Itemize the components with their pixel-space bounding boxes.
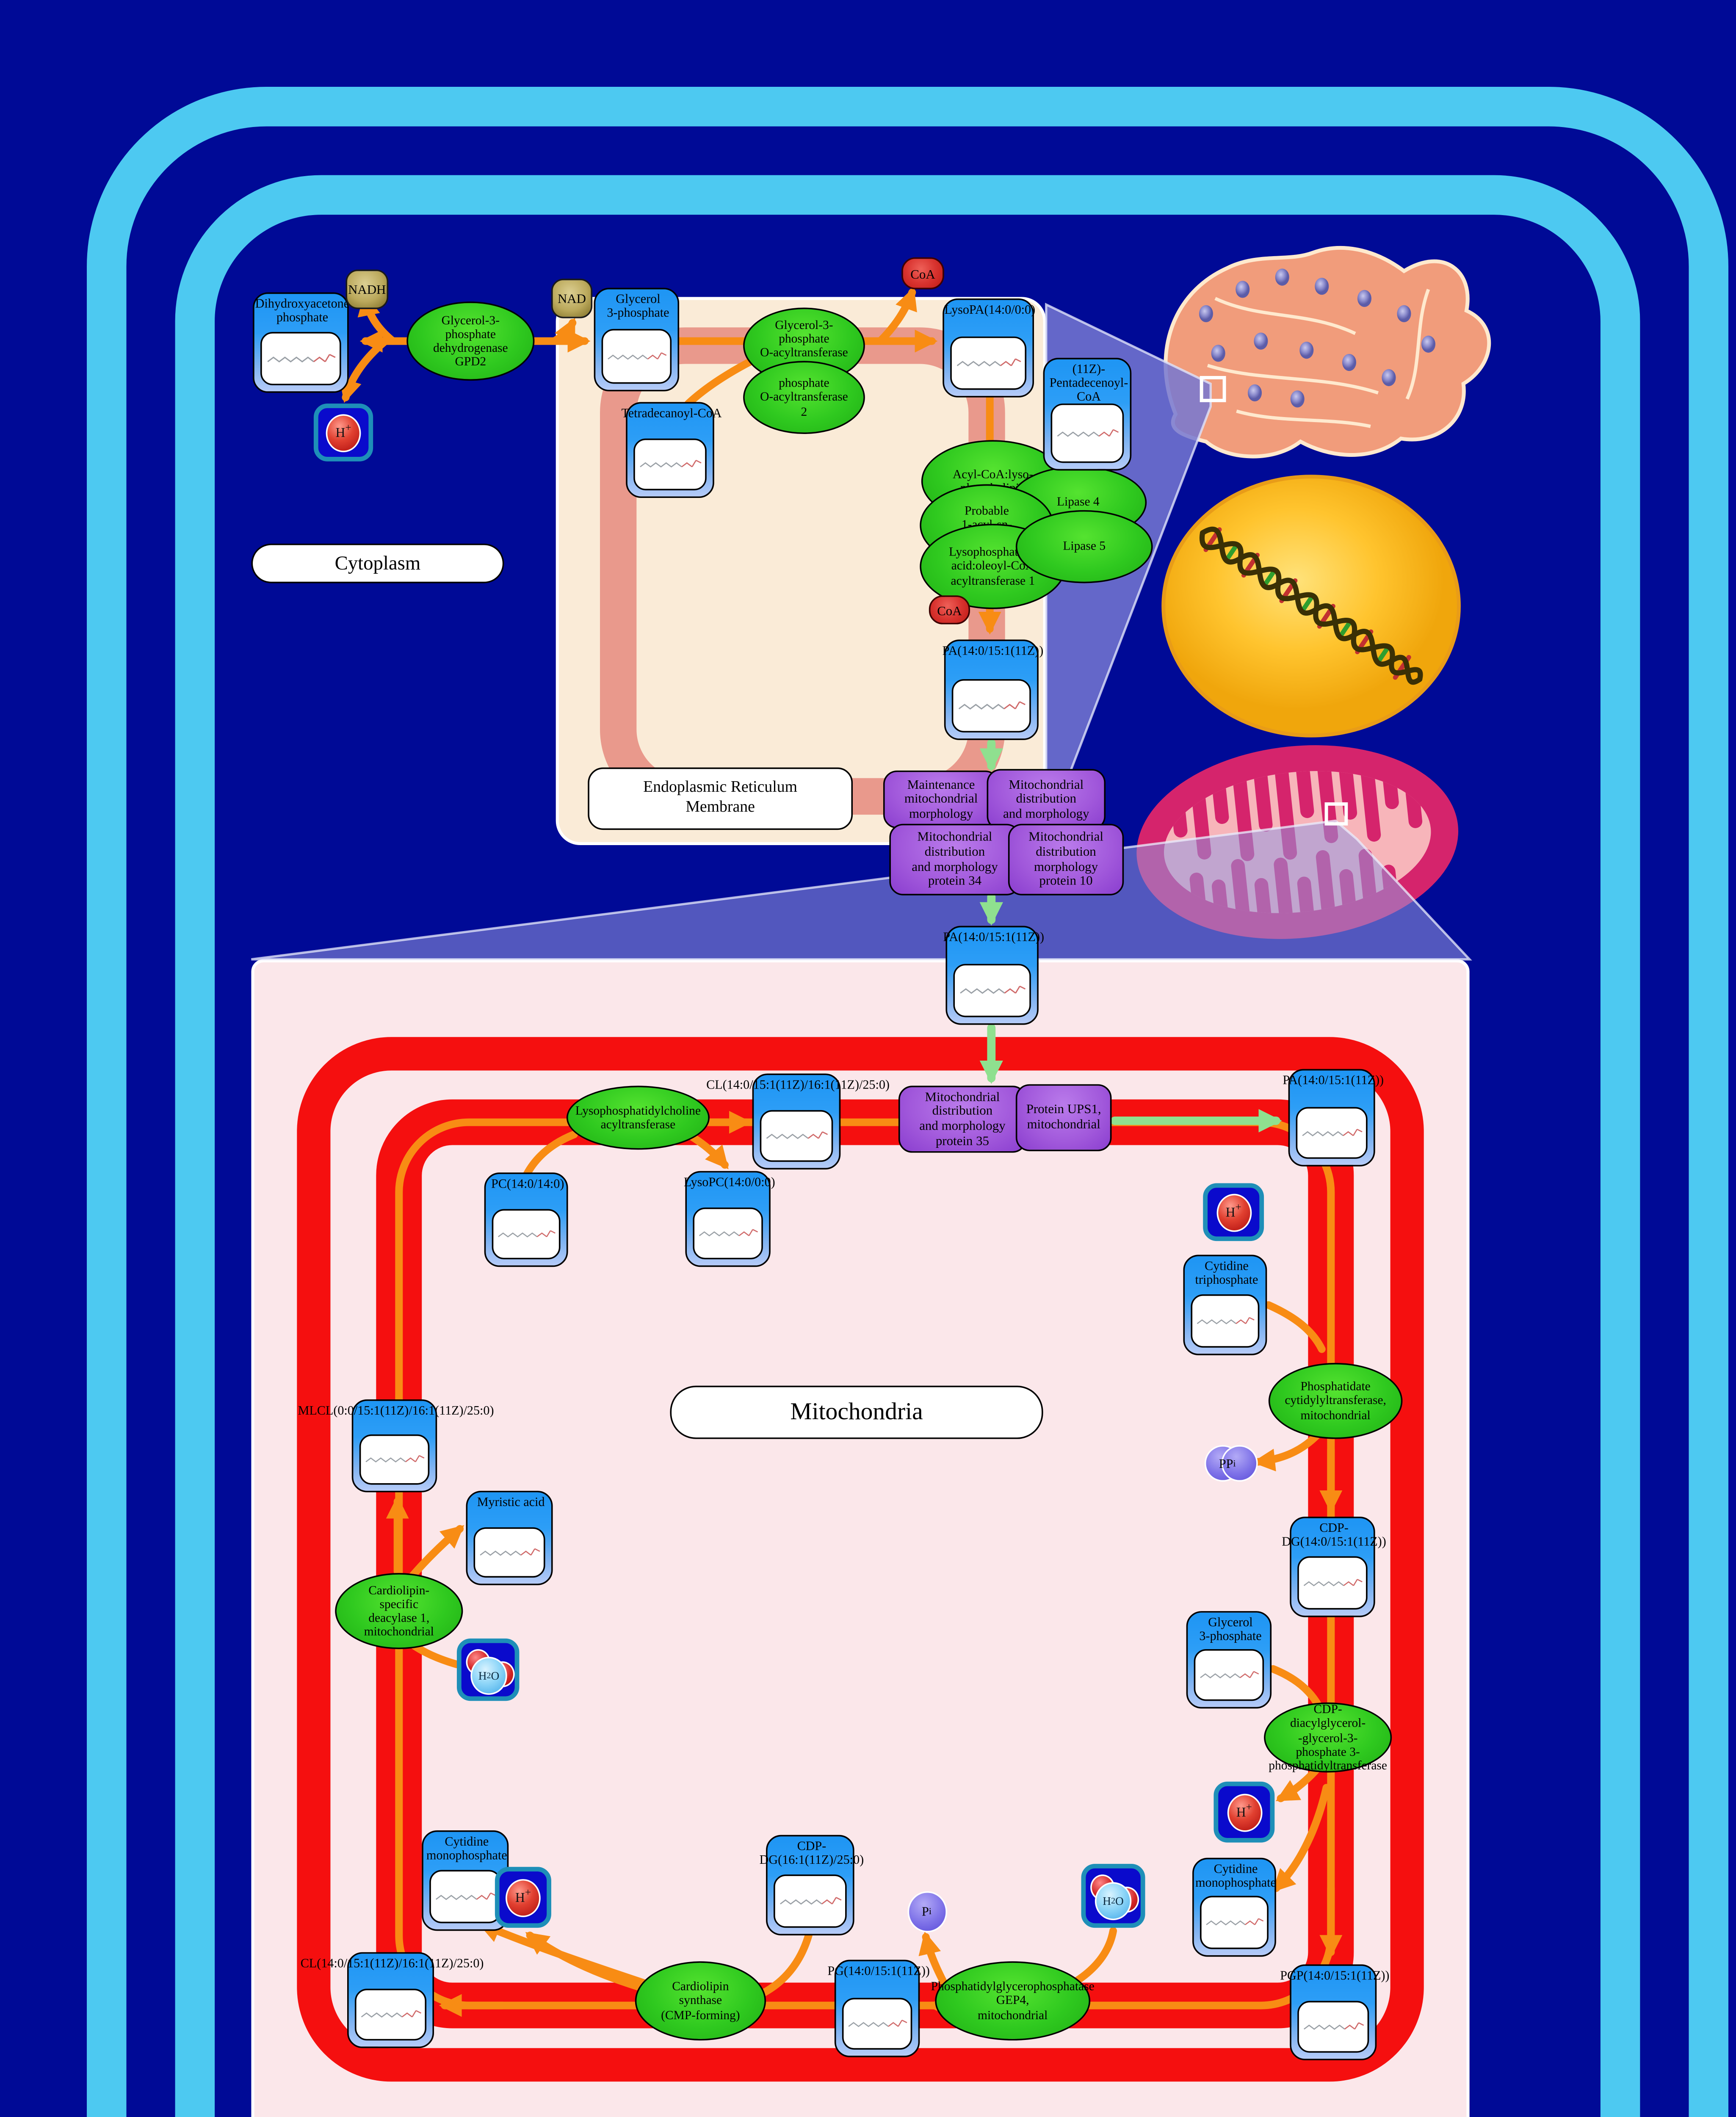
cofactor-nadh[interactable]: NADH	[346, 270, 388, 310]
metabolite-cmp-right[interactable]: Cytidine monophosphate	[1192, 1858, 1276, 1957]
molecule-structure-icon	[633, 439, 707, 490]
cofactor-nad[interactable]: NAD	[551, 279, 592, 318]
molecule-structure-icon	[359, 1435, 429, 1485]
molecule-structure-icon	[953, 964, 1031, 1017]
metabolite-ctp[interactable]: Cytidine triphosphate	[1183, 1255, 1267, 1355]
cofactor-h2o-left[interactable]: H2O	[457, 1639, 519, 1701]
enzyme-lpcat[interactable]: Lysophosphatidylcholine acyltransferase	[567, 1086, 710, 1150]
metabolite-cl-top[interactable]: CL(14:0/15:1(11Z)/16:1(11Z)/25:0)	[752, 1074, 841, 1170]
enzyme-lipase-5[interactable]: Lipase 5	[1016, 510, 1153, 583]
protein-mdm-complex[interactable]: Mitochondrial distribution and morpholog…	[987, 769, 1106, 830]
proton-icon: H+	[1227, 1793, 1262, 1831]
protein-ups1[interactable]: Protein UPS1, mitochondrial	[1016, 1084, 1112, 1151]
molecule-structure-icon	[774, 1874, 847, 1928]
molecule-structure-icon	[1200, 1896, 1269, 1949]
metabolite-pgp[interactable]: PGP(14:0/15:1(11Z))	[1290, 1964, 1377, 2060]
molecule-structure-icon	[952, 679, 1031, 732]
proton-icon: H+	[506, 1878, 541, 1916]
metabolite-mlcl[interactable]: MLCL(0:0/15:1(11Z)/16:1(11Z)/25:0)	[352, 1399, 437, 1492]
proton-icon: H+	[1216, 1193, 1251, 1231]
metabolite-cl-bottom[interactable]: CL(14:0/15:1(11Z)/16:1(11Z)/25:0)	[347, 1952, 434, 2048]
mitochondria-label: Mitochondria	[670, 1386, 1043, 1439]
cofactor-h-cytoplasm[interactable]: H+	[314, 404, 373, 462]
cofactor-h-mito-right[interactable]: H+	[1214, 1782, 1274, 1843]
protein-mdm35[interactable]: Mitochondrial distribution and morpholog…	[898, 1086, 1026, 1152]
molecule-structure-icon	[760, 1111, 833, 1162]
metabolite-pentadecenoyl-coa[interactable]: (11Z)- Pentadecenoyl- CoA	[1043, 358, 1132, 470]
water-molecule-icon: H2O	[1095, 1882, 1131, 1920]
water-molecule-icon: H2O	[470, 1657, 507, 1695]
cofactor-h-mito-left[interactable]: H+	[495, 1867, 551, 1928]
metabolite-pa-mito[interactable]: PA(14:0/15:1(11Z))	[1288, 1069, 1375, 1166]
molecule-structure-icon	[492, 1209, 561, 1259]
molecule-structure-icon	[1051, 403, 1124, 463]
enzyme-cardiolipin-synthase[interactable]: Cardiolipin synthase (CMP-forming)	[635, 1961, 766, 2040]
enzyme-gpd2[interactable]: Glycerol-3- phosphate dehydrogenase GPD2	[406, 301, 534, 381]
enzyme-phosphatidate-cytidylyltransferase[interactable]: Phosphatidate cytidylyltransferase, mito…	[1269, 1363, 1402, 1439]
cofactor-h-mito-top[interactable]: H+	[1203, 1183, 1264, 1241]
enzyme-gep4[interactable]: Phosphatidylglycerophosphatase GEP4, mit…	[935, 1961, 1090, 2040]
molecule-structure-icon	[1191, 1294, 1259, 1348]
molecule-structure-icon	[693, 1208, 763, 1259]
cofactor-coa-2[interactable]: CoA	[929, 595, 970, 624]
protein-mdm34[interactable]: Mitochondrial distribution and morpholog…	[889, 824, 1020, 895]
metabolite-tetradecanoyl-coa[interactable]: Tetradecanoyl-CoA	[626, 402, 714, 498]
molecule-structure-icon	[355, 1989, 426, 2040]
proton-icon: H+	[326, 413, 361, 451]
cofactor-ppi[interactable]: PPi	[1205, 1442, 1250, 1485]
metabolite-pg[interactable]: PG(14:0/15:1(11Z))	[835, 1960, 920, 2057]
molecule-structure-icon	[260, 332, 341, 385]
protein-maintenance-morphology[interactable]: Maintenance mitochondrial morphology	[883, 771, 999, 829]
metabolite-g3p-cytoplasm[interactable]: Glycerol 3-phosphate	[594, 288, 679, 392]
enzyme-gpat2[interactable]: phosphate O-acyltransferase 2	[743, 361, 865, 434]
enzyme-cardiolipin-deacylase[interactable]: Cardiolipin- specific deacylase 1, mitoc…	[335, 1573, 463, 1649]
metabolite-cdp-dg-bottom[interactable]: CDP- DG(16:1(11Z)/25:0)	[766, 1835, 854, 1935]
metabolite-pa-transfer[interactable]: PA(14:0/15:1(11Z))	[945, 926, 1038, 1025]
metabolite-lysopa[interactable]: LysoPA(14:0/0:0)	[943, 298, 1034, 398]
cofactor-pi[interactable]: Pi	[908, 1891, 946, 1931]
er-membrane-label: Endoplasmic Reticulum Membrane	[588, 768, 853, 830]
cofactor-h2o-bottom[interactable]: H2O	[1081, 1864, 1145, 1928]
protein-mdm10[interactable]: Mitochondrial distribution morphology pr…	[1008, 824, 1124, 895]
molecule-structure-icon	[474, 1527, 545, 1578]
metabolite-g3p-mito[interactable]: Glycerol 3-phosphate	[1186, 1611, 1272, 1708]
molecule-structure-icon	[602, 329, 672, 384]
metabolite-pc[interactable]: PC(14:0/14:0)	[484, 1172, 568, 1267]
metabolite-pa-er[interactable]: PA(14:0/15:1(11Z))	[944, 640, 1039, 740]
enzyme-cdp-dag-g3p-phosphatidyltransferase[interactable]: CDP- diacylglycerol- -glycerol-3- phosph…	[1264, 1702, 1392, 1772]
molecule-structure-icon	[1297, 2001, 1369, 2053]
molecule-structure-icon	[1296, 1107, 1368, 1159]
pathway-canvas: Glycerol-3- phosphate dehydrogenase GPD2…	[0, 0, 1736, 2117]
molecule-structure-icon	[429, 1870, 501, 1924]
metabolite-myristic-acid[interactable]: Myristic acid	[466, 1491, 553, 1585]
metabolite-cdp-dg-right[interactable]: CDP- DG(14:0/15:1(11Z))	[1290, 1517, 1375, 1617]
molecule-structure-icon	[842, 1998, 912, 2050]
metabolite-lysopc[interactable]: LysoPC(14:0/0:0)	[685, 1171, 770, 1267]
metabolite-dhap[interactable]: Dihydroxyacetone phosphate	[253, 293, 349, 393]
molecule-structure-icon	[950, 337, 1026, 390]
cytoplasm-label: Cytoplasm	[251, 544, 504, 583]
cofactor-coa-1[interactable]: CoA	[901, 257, 944, 290]
molecule-structure-icon	[1297, 1556, 1367, 1610]
molecule-structure-icon	[1194, 1649, 1264, 1701]
